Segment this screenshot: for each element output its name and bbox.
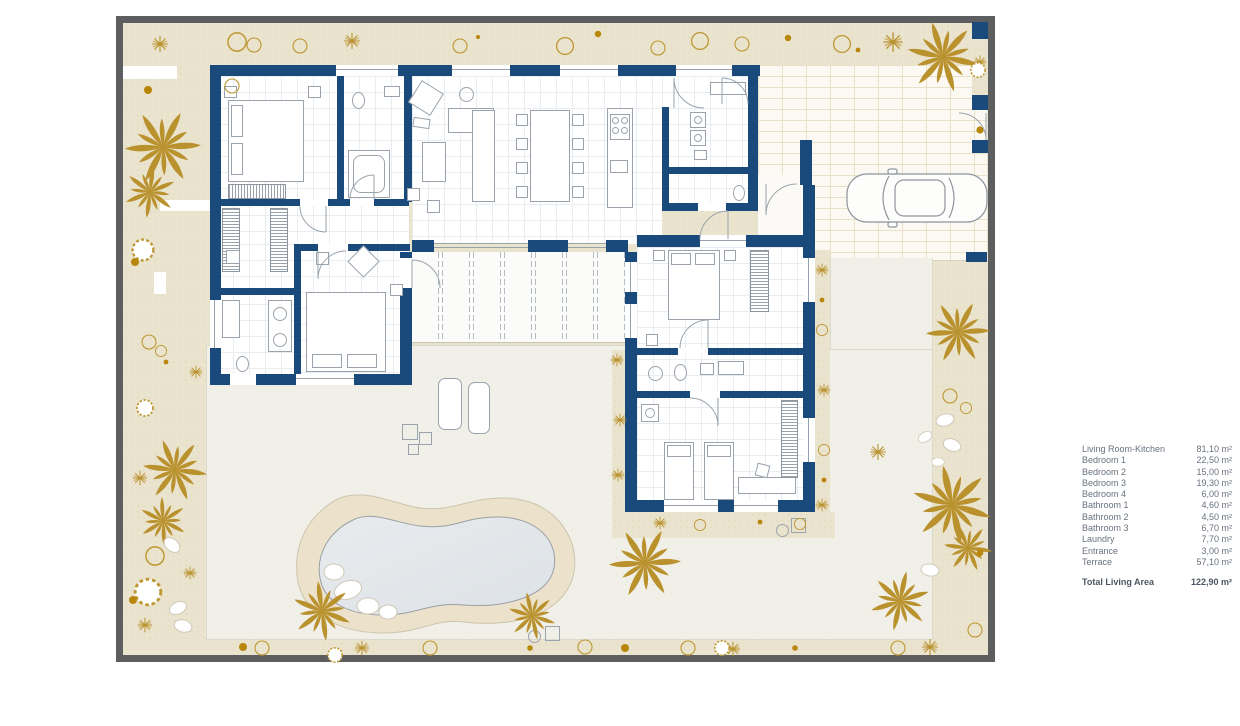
- gate-pillar: [966, 252, 987, 262]
- wall: [404, 76, 412, 202]
- wall: [637, 391, 803, 398]
- car-icon: [845, 167, 991, 229]
- window: [676, 65, 732, 76]
- gate-pillar: [972, 95, 988, 110]
- legend-row: Bedroom 122,50 m²: [1082, 455, 1232, 466]
- door-opening: [678, 348, 708, 355]
- legend-room-area: 4,50 m²: [1201, 512, 1232, 523]
- wall: [528, 240, 568, 252]
- toilet: [674, 364, 687, 381]
- door-opening: [230, 374, 256, 385]
- pool: [268, 462, 598, 640]
- wall: [412, 240, 434, 252]
- legend-row: Laundry7,70 m²: [1082, 534, 1232, 545]
- chair: [516, 186, 528, 198]
- legend-room-area: 15,00 m²: [1196, 467, 1232, 478]
- laundry-counter: [710, 82, 746, 95]
- sliding-glass-door: [434, 247, 528, 248]
- legend-row: Entrance3,00 m²: [1082, 546, 1232, 557]
- garden-path: [123, 66, 177, 79]
- legend-room-label: Entrance: [1082, 546, 1118, 557]
- nightstand: [224, 86, 237, 98]
- kitchen-sink: [610, 160, 628, 173]
- window: [803, 418, 815, 462]
- window: [664, 500, 718, 512]
- legend-total-row: Total Living Area122,90 m²: [1082, 577, 1232, 588]
- legend-room-label: Laundry: [1082, 534, 1115, 545]
- legend-row: Bathroom 36,70 m²: [1082, 523, 1232, 534]
- legend-room-area: 4,60 m²: [1201, 500, 1232, 511]
- patio-east: [830, 258, 933, 350]
- wardrobe: [781, 400, 798, 478]
- legend-row: Bedroom 319,30 m²: [1082, 478, 1232, 489]
- nightstand: [308, 86, 321, 98]
- sink: [700, 363, 714, 375]
- wall: [217, 288, 301, 295]
- legend-total-area: 122,90 m²: [1191, 577, 1232, 588]
- wall: [294, 244, 410, 251]
- garden-path: [160, 200, 213, 211]
- terrace-edge: [412, 342, 628, 343]
- toilet: [733, 185, 745, 201]
- window: [625, 304, 637, 338]
- sun-lounger: [468, 382, 490, 434]
- legend-row: Terrace57,10 m²: [1082, 557, 1232, 568]
- sink: [273, 307, 287, 321]
- legend-room-label: Bedroom 1: [1082, 455, 1126, 466]
- wardrobe: [228, 184, 286, 199]
- sink: [384, 86, 400, 97]
- wall: [637, 348, 803, 355]
- door-opening: [300, 199, 328, 206]
- chair: [572, 162, 584, 174]
- wall: [748, 65, 758, 210]
- legend-total-label: Total Living Area: [1082, 577, 1154, 588]
- wall: [662, 167, 748, 174]
- legend-room-area: 81,10 m²: [1196, 444, 1232, 455]
- legend-room-label: Terrace: [1082, 557, 1112, 568]
- window: [734, 500, 778, 512]
- door-opening: [318, 244, 348, 251]
- door-opening: [698, 203, 726, 211]
- window: [210, 300, 221, 348]
- wall: [800, 140, 812, 185]
- window: [560, 65, 618, 76]
- coffee-table: [422, 142, 446, 182]
- dining-table: [530, 110, 570, 202]
- nightstand: [724, 250, 736, 261]
- legend-room-area: 57,10 m²: [1196, 557, 1232, 568]
- gate-pillar: [972, 22, 988, 39]
- legend-room-area: 6,00 m²: [1201, 489, 1232, 500]
- legend-room-label: Bathroom 3: [1082, 523, 1129, 534]
- legend-room-area: 7,70 m²: [1201, 534, 1232, 545]
- entrance-porch: [758, 175, 803, 243]
- legend-room-label: Bedroom 2: [1082, 467, 1126, 478]
- toilet: [352, 92, 365, 109]
- sun-lounger: [438, 378, 462, 430]
- planting-strip: [972, 41, 988, 95]
- legend-row: Bedroom 215,00 m²: [1082, 467, 1232, 478]
- wardrobe: [750, 250, 769, 312]
- nightstand: [653, 250, 665, 261]
- terrace-pergola: [412, 252, 628, 342]
- shower: [648, 366, 663, 381]
- vanity: [718, 361, 744, 375]
- chair: [516, 162, 528, 174]
- planting-strip: [815, 250, 830, 512]
- legend-room-label: Bathroom 2: [1082, 512, 1129, 523]
- gate-pillar: [972, 140, 988, 153]
- wardrobe: [270, 208, 288, 272]
- wall: [625, 500, 815, 512]
- wall: [606, 240, 628, 252]
- legend-room-label: Bathroom 1: [1082, 500, 1129, 511]
- legend-room-area: 19,30 m²: [1196, 478, 1232, 489]
- window: [803, 258, 815, 302]
- chair: [516, 114, 528, 126]
- window: [452, 65, 510, 76]
- window: [296, 374, 354, 385]
- room-corridor: [217, 199, 409, 247]
- desk: [738, 477, 796, 494]
- sliding-glass-door: [568, 243, 606, 244]
- sofa: [472, 110, 495, 202]
- legend-row: Bedroom 46,00 m²: [1082, 489, 1232, 500]
- wall: [294, 244, 301, 376]
- sliding-glass-door: [568, 247, 606, 248]
- planting-strip: [612, 350, 625, 512]
- toilet: [236, 356, 249, 372]
- cabinet: [226, 250, 240, 264]
- sink: [694, 150, 707, 160]
- legend-room-label: Living Room-Kitchen: [1082, 444, 1165, 455]
- sliding-glass-door: [434, 243, 528, 244]
- wall: [662, 107, 669, 208]
- area-legend: Living Room-Kitchen81,10 m² Bedroom 122,…: [1082, 444, 1232, 589]
- legend-room-area: 3,00 m²: [1201, 546, 1232, 557]
- chair: [572, 114, 584, 126]
- chair: [572, 186, 584, 198]
- wall: [803, 185, 815, 512]
- shower: [222, 300, 240, 338]
- window: [625, 262, 637, 292]
- door-opening: [690, 391, 720, 398]
- legend-row: Bathroom 14,60 m²: [1082, 500, 1232, 511]
- garden-path: [154, 272, 166, 294]
- floor-plan: Living Room-Kitchen81,10 m² Bedroom 122,…: [0, 0, 1240, 726]
- legend-row: Bathroom 24,50 m²: [1082, 512, 1232, 523]
- sink: [273, 333, 287, 347]
- wall: [337, 76, 344, 202]
- legend-room-area: 6,70 m²: [1201, 523, 1232, 534]
- legend-row: Living Room-Kitchen81,10 m²: [1082, 444, 1232, 455]
- chair: [572, 138, 584, 150]
- chair: [516, 138, 528, 150]
- door-opening: [350, 199, 374, 206]
- nightstand: [390, 284, 403, 296]
- window: [336, 65, 398, 76]
- legend-room-label: Bedroom 3: [1082, 478, 1126, 489]
- legend-room-label: Bedroom 4: [1082, 489, 1126, 500]
- window: [700, 235, 746, 247]
- legend-room-area: 22,50 m²: [1196, 455, 1232, 466]
